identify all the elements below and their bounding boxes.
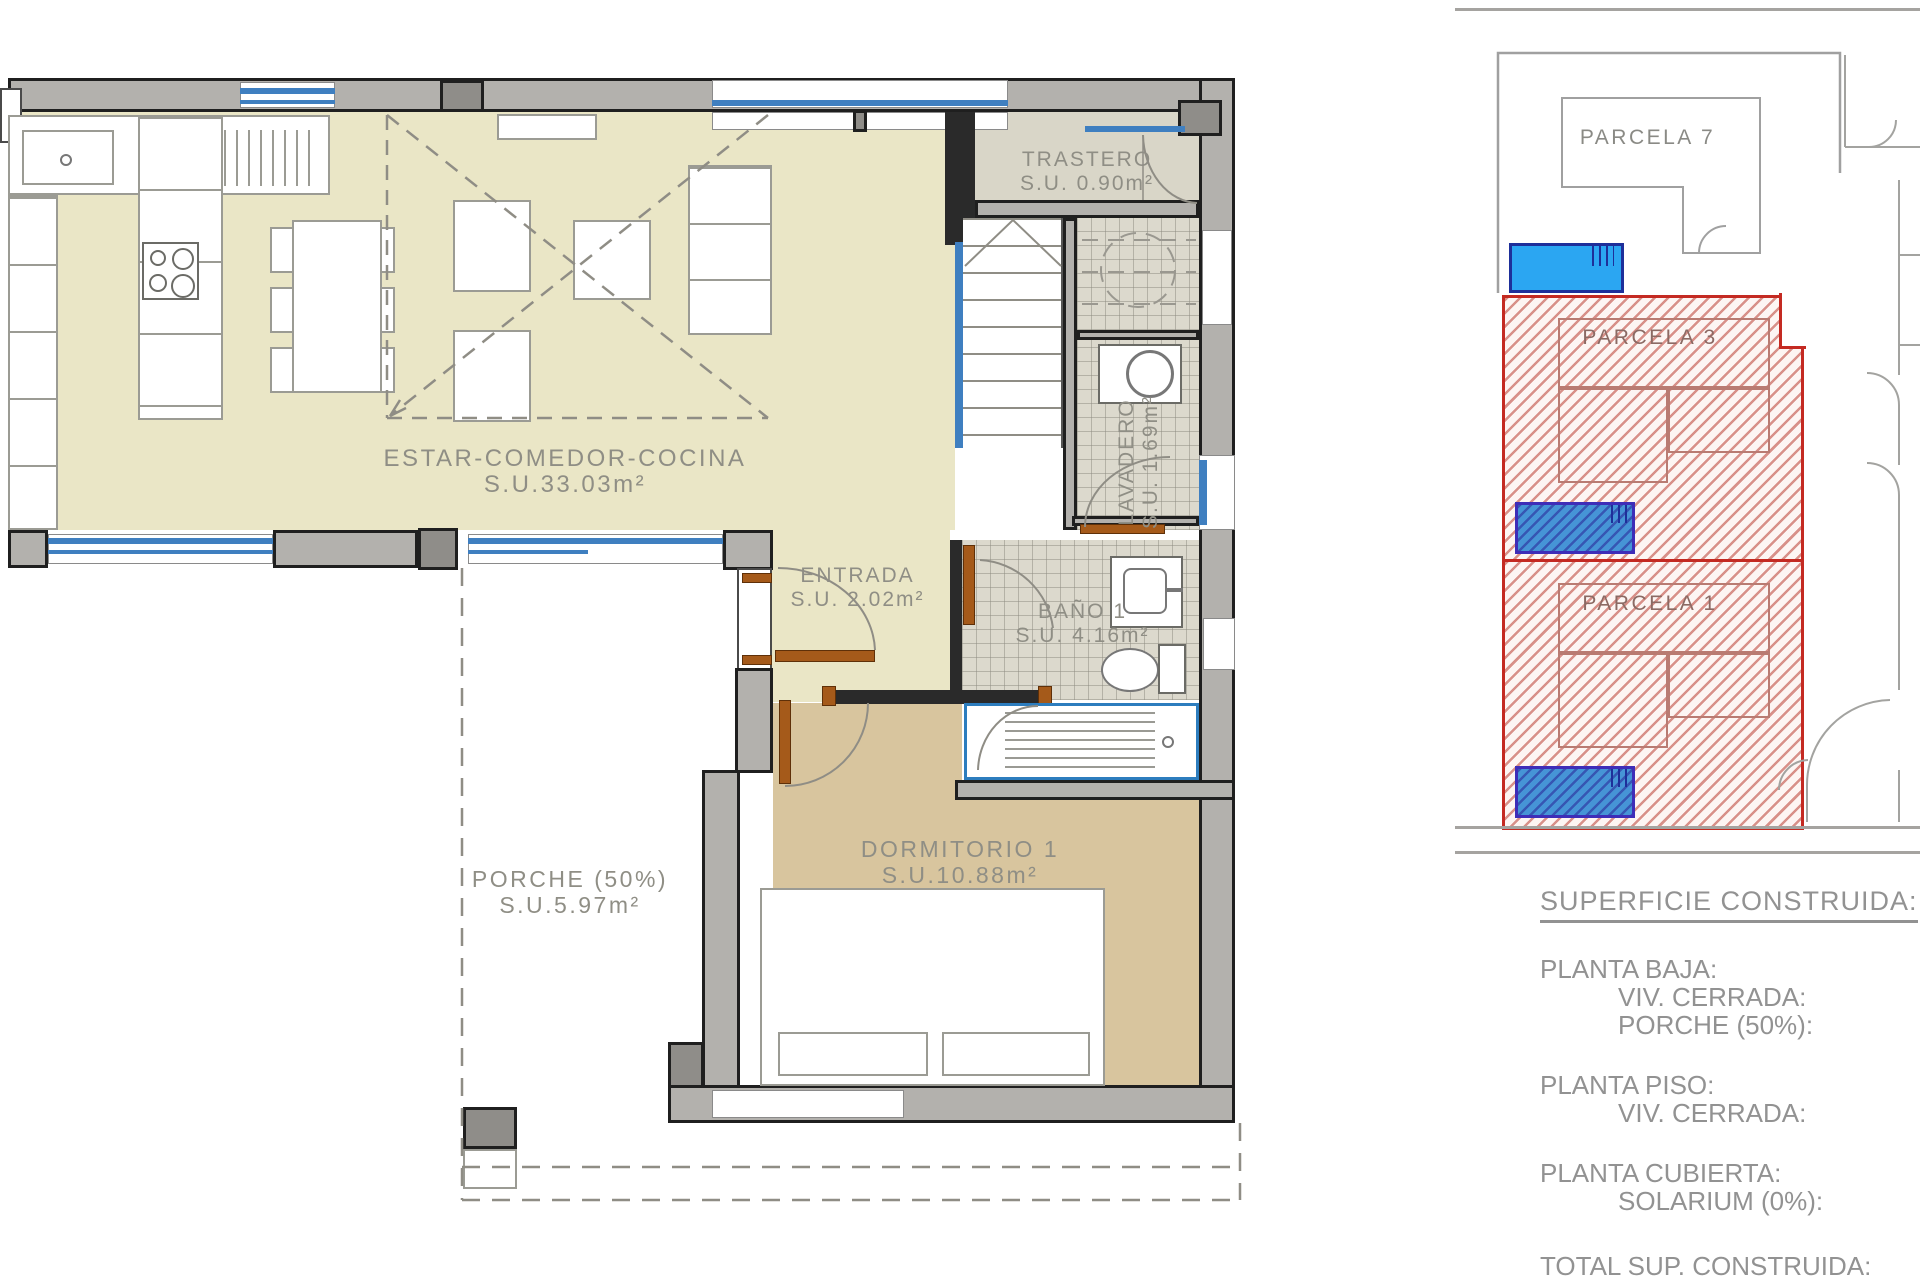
room-name: PORCHE (50%): [425, 866, 715, 892]
summary-heading: PLANTA CUBIERTA:: [1540, 1159, 1915, 1187]
pool-steps: [1592, 246, 1614, 266]
room-label-entrada: ENTRADA S.U. 2.02m²: [760, 564, 955, 612]
window-recess: [1202, 230, 1232, 325]
stove-burner: [149, 274, 167, 292]
armchair: [453, 330, 531, 422]
road-line: [1455, 826, 1920, 829]
hall-tiled-fill: [1077, 218, 1199, 330]
wall-segment-top: [8, 78, 1235, 112]
faucet: [1167, 588, 1183, 592]
parcel-1-label: PARCELA 1: [1540, 592, 1760, 616]
window-glass: [240, 100, 335, 104]
room-area: S.U. 1.69m²: [1139, 372, 1163, 552]
window-glass: [48, 538, 273, 544]
toilet-tank: [1158, 644, 1186, 694]
parcel-3-notch: [1779, 293, 1806, 349]
pillow: [778, 1032, 928, 1076]
toilet-bowl: [1101, 648, 1159, 692]
window-glass: [712, 100, 1008, 106]
wall-segment: [955, 780, 1235, 800]
window-gap: [712, 1090, 904, 1118]
window: [240, 82, 335, 108]
summary-heading: PLANTA BAJA:: [1540, 955, 1915, 983]
summary-item: SOLARIUM (0%):: [1540, 1187, 1915, 1215]
parcel-3-label: PARCELA 3: [1540, 326, 1760, 350]
window-glass: [1085, 126, 1185, 132]
coffee-table: [573, 220, 651, 300]
room-label-dormitorio: DORMITORIO 1 S.U.10.88m²: [790, 836, 1130, 888]
armchair: [453, 200, 531, 292]
window-glass: [468, 538, 723, 544]
surface-summary: SUPERFICIE CONSTRUIDA: PLANTA BAJA: VIV.…: [1540, 886, 1915, 1282]
wall-segment: [273, 530, 418, 568]
dining-table: [292, 220, 382, 393]
door-leaf-dormitorio: [779, 700, 791, 784]
room-area: S.U. 0.90m²: [975, 172, 1199, 196]
sink-drain: [60, 154, 72, 166]
room-area: S.U.10.88m²: [790, 862, 1130, 888]
column: [668, 1042, 704, 1088]
building-footprint: [1558, 388, 1668, 483]
door-frame: [822, 686, 836, 706]
room-name: TRASTERO: [975, 148, 1199, 172]
room-area: S.U. 2.02m²: [760, 588, 955, 612]
room-label-bano: BAÑO 1 S.U. 4.16m²: [975, 600, 1190, 648]
wall-segment: [735, 668, 773, 773]
room-entrada-fill: [772, 530, 950, 702]
pillow: [942, 1032, 1090, 1076]
summary-title: SUPERFICIE CONSTRUIDA:: [1540, 886, 1918, 923]
window-glass: [240, 88, 335, 94]
column: [440, 80, 484, 112]
wall-segment-dormitorio: [835, 690, 1045, 704]
window-glass: [48, 550, 273, 554]
room-label-lavadero: LAVADERO S.U. 1.69m²: [1115, 372, 1165, 552]
room-label-porche: PORCHE (50%) S.U.5.97m²: [425, 866, 715, 918]
room-name: ENTRADA: [760, 564, 955, 588]
room-name: BAÑO 1: [975, 600, 1190, 624]
stove-burner: [172, 248, 194, 270]
summary-group-planta-cubierta: PLANTA CUBIERTA: SOLARIUM (0%):: [1540, 1159, 1915, 1215]
room-name: LAVADERO: [1115, 372, 1139, 552]
door-leaf-entry: [775, 650, 875, 662]
column: [418, 528, 458, 570]
wall-segment-trastero: [975, 200, 1199, 218]
room-label-trastero: TRASTERO S.U. 0.90m²: [975, 148, 1199, 196]
window-glass: [1199, 460, 1207, 525]
shower-drain: [1162, 736, 1174, 748]
building-footprint: [1668, 653, 1770, 718]
kitchen-cabinets: [8, 195, 58, 530]
room-area: S.U.33.03m²: [330, 472, 800, 498]
wall-segment: [8, 530, 48, 568]
summary-total: TOTAL SUP. CONSTRUIDA:: [1540, 1251, 1915, 1282]
summary-item: PORCHE (50%):: [1540, 1011, 1915, 1039]
building-footprint: [1558, 653, 1668, 748]
blueprint-canvas: ESTAR-COMEDOR-COCINA S.U.33.03m² TRASTER…: [0, 0, 1920, 1280]
sofa: [688, 165, 772, 335]
parcel-7-label: PARCELA 7: [1565, 126, 1730, 150]
stove-burner: [171, 274, 195, 298]
building-footprint: [1668, 388, 1770, 453]
wall-segment: [1077, 330, 1199, 340]
tv-shelf: [497, 114, 597, 140]
summary-heading: PLANTA PISO:: [1540, 1071, 1915, 1099]
shower-tray-lines: [1005, 712, 1155, 770]
door-leaf-bano: [963, 545, 975, 625]
window-recess: [1203, 618, 1235, 670]
porch-column: [463, 1107, 517, 1149]
site-boundary-line: [1455, 8, 1920, 11]
door-frame: [742, 655, 772, 665]
stove-burner: [150, 250, 166, 266]
summary-group-planta-piso: PLANTA PISO: VIV. CERRADA:: [1540, 1071, 1915, 1127]
room-area: S.U. 4.16m²: [975, 624, 1190, 648]
room-label-estar: ESTAR-COMEDOR-COCINA S.U.33.03m²: [330, 446, 800, 498]
room-name: ESTAR-COMEDOR-COCINA: [330, 446, 800, 472]
room-area: S.U.5.97m²: [425, 892, 715, 918]
column: [853, 110, 867, 132]
summary-group-planta-baja: PLANTA BAJA: VIV. CERRADA: PORCHE (50%):: [1540, 955, 1915, 1039]
wall-stair-stringer: [1063, 218, 1077, 530]
glass-partition: [955, 242, 963, 448]
room-name: DORMITORIO 1: [790, 836, 1130, 862]
road-line: [1455, 851, 1920, 854]
summary-item: VIV. CERRADA:: [1540, 1099, 1915, 1127]
pool-steps: [1611, 769, 1631, 787]
staircase: [963, 218, 1063, 448]
wall-segment-dormitorio-west: [702, 770, 740, 1088]
summary-item: VIV. CERRADA:: [1540, 983, 1915, 1011]
pool-steps: [1611, 505, 1631, 523]
porch-column-base: [463, 1149, 517, 1189]
window-glass: [468, 550, 588, 554]
